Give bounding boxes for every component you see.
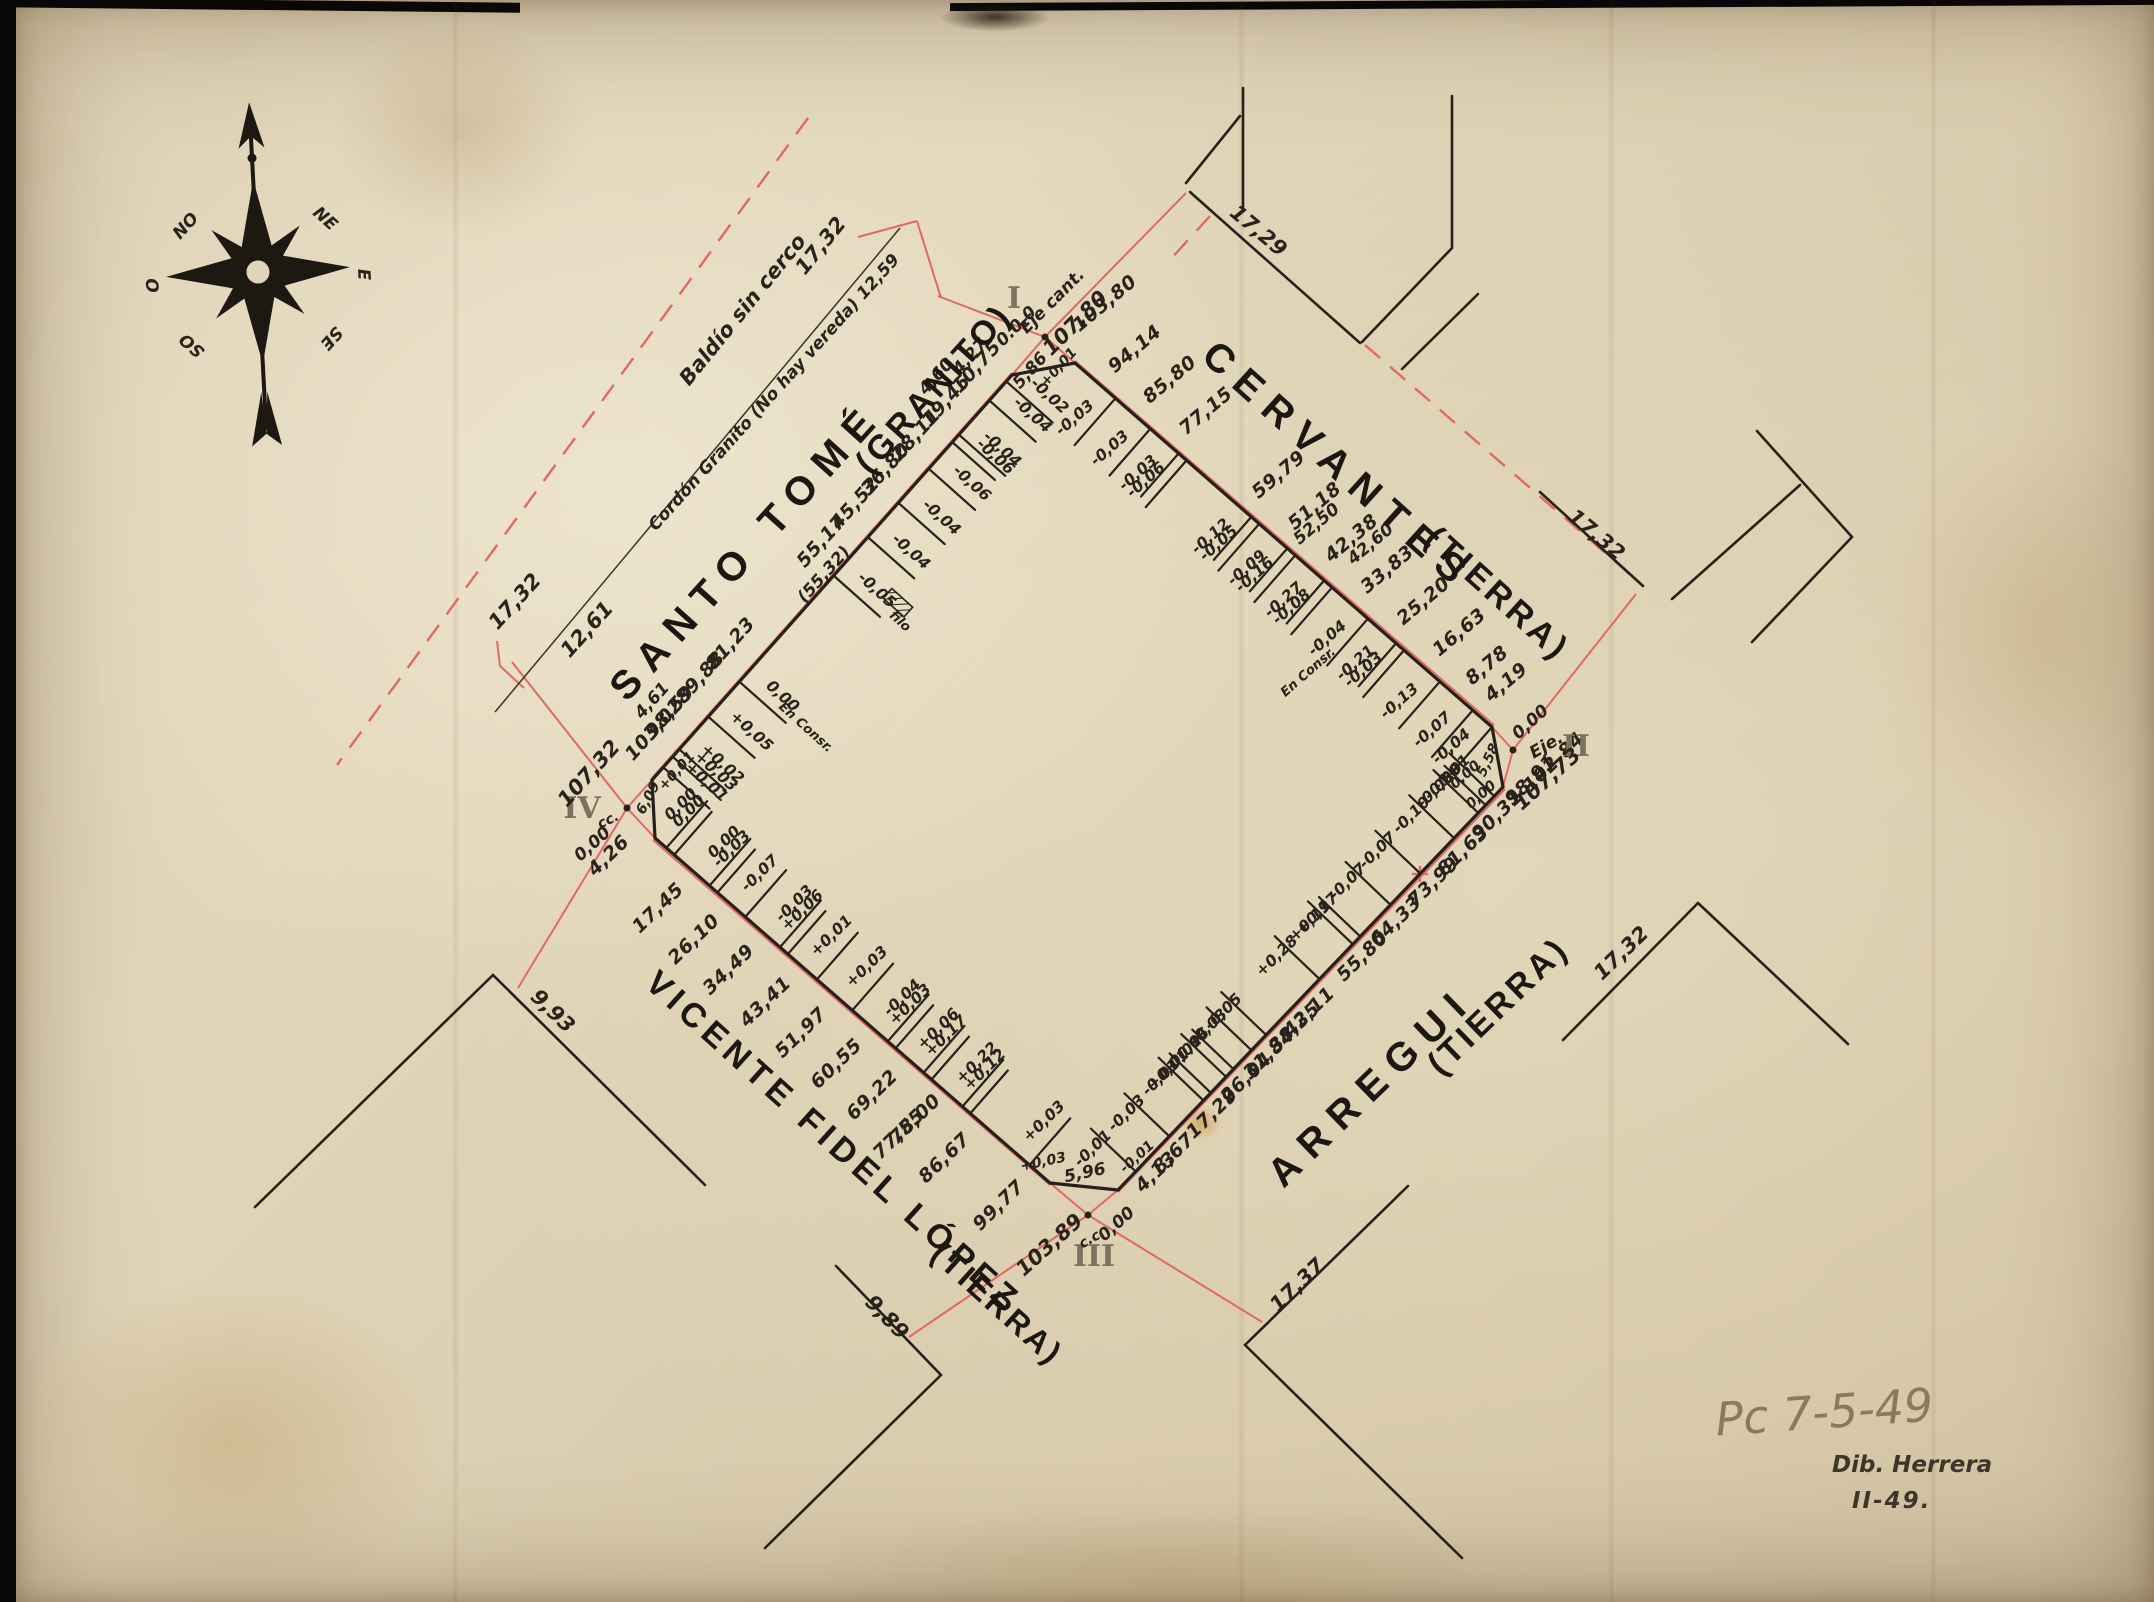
- station-distance-label: 69,22: [842, 1065, 902, 1124]
- neighbor-block-line: [1402, 294, 1478, 369]
- neighbor-block-line: [1752, 537, 1852, 642]
- compass-point-label-ne: NE: [309, 203, 342, 235]
- neighbor-block-line: [255, 975, 493, 1207]
- compass-group: NONEOESOSE: [134, 96, 382, 452]
- compass-point-label-o: O: [143, 278, 164, 293]
- survey-plan-canvas: -0,02-0,04-0,04-0,06-0,06-0,04-0,04-0,05…: [0, 0, 2154, 1602]
- map-annotation-label: 5,96: [1062, 1159, 1107, 1187]
- map-annotation-label: +0,03: [1019, 1149, 1068, 1174]
- correction-label: -0,06: [949, 462, 994, 505]
- map-annotation-label: 9,93: [526, 984, 580, 1037]
- station-distance-label: 78,00: [885, 1090, 945, 1149]
- compass-point-label-se: SE: [315, 322, 346, 353]
- compass-hub: [244, 258, 271, 285]
- neighbor-block-line: [1245, 1345, 1462, 1558]
- compass-point-label-no: NO: [169, 209, 203, 244]
- station-distance-label: 85,80: [1139, 351, 1201, 408]
- correction-label: +0,03: [1019, 1097, 1068, 1146]
- map-annotation-label: 9,89: [860, 1290, 913, 1344]
- scanned-survey-sheet: -0,02-0,04-0,04-0,06-0,06-0,04-0,04-0,05…: [0, 0, 2154, 1602]
- map-annotation-label: 17,32: [1563, 504, 1629, 565]
- station-distance-label: 16,63: [1428, 604, 1490, 661]
- correction-label: -0,03: [1104, 1091, 1149, 1135]
- station-distance-label: 17,45: [628, 878, 688, 937]
- station-distance-label: 86,67: [914, 1128, 975, 1188]
- station-distance-label: 43,41: [735, 972, 796, 1032]
- neighbor-block-line: [1362, 248, 1452, 342]
- station-distance-label: 99,77: [968, 1176, 1029, 1236]
- neighbor-block-line: [1245, 1186, 1408, 1345]
- map-annotation-label: 17,37: [1265, 1253, 1330, 1317]
- compass-fletching: [264, 391, 282, 446]
- official-line-red: [1503, 750, 1513, 787]
- neighbor-block-line: [1672, 485, 1800, 599]
- neighbor-block-line: [1186, 116, 1240, 183]
- tick-note-label: En Consr.: [775, 700, 835, 756]
- correction-label: +0,03: [842, 942, 891, 991]
- station-distance-label: 26,10: [664, 910, 724, 969]
- compass-point-label-e: E: [353, 268, 374, 281]
- neighbor-block-line: [1563, 903, 1698, 1040]
- compass-point-label-so: SO: [176, 329, 209, 362]
- correction-label: -0,07: [737, 851, 782, 895]
- station-distance-label: 34,49: [698, 940, 758, 999]
- correction-label: +0,01: [807, 911, 856, 960]
- compass-rose: NONEOESOSE: [134, 96, 382, 452]
- station-distance-label: 51,97: [771, 1003, 832, 1063]
- neighbor-block-line: [765, 1375, 941, 1548]
- correction-label: -0,10: [1389, 793, 1434, 837]
- axis-intersection-dot: [624, 805, 631, 812]
- draftsman-date-note: II-49.: [1852, 1488, 1931, 1514]
- station-distance-label: 94,14: [1104, 320, 1166, 377]
- axis-intersection-dot: [1510, 747, 1517, 754]
- tick-note-label: filo: [886, 608, 914, 635]
- correction-label: -0,03: [1087, 427, 1133, 470]
- official-line-red: [497, 641, 500, 666]
- correction-label: -0,04: [889, 530, 934, 573]
- official-line-red-dashed: [1168, 216, 1210, 262]
- neighbor-block-line: [1757, 431, 1852, 537]
- official-line-red: [917, 221, 941, 298]
- official-line-red: [500, 666, 524, 688]
- neighbor-block-line: [1698, 903, 1848, 1044]
- compass-shaft-bead: [247, 153, 256, 162]
- draftsman-note: Dib. Herrera: [1832, 1452, 1992, 1478]
- official-line-red: [858, 221, 917, 237]
- official-line-red: [1088, 1190, 1118, 1215]
- station-distance-label: 60,55: [806, 1034, 866, 1093]
- ochava-chamfer-line: [1050, 1183, 1118, 1190]
- correction-label: -0,04: [919, 496, 964, 539]
- tick-note-label: En Consr.: [1278, 645, 1339, 701]
- axis-intersection-dot: [1085, 1212, 1092, 1219]
- correction-label: +0,05: [727, 707, 777, 755]
- map-annotation-label: 17,32: [484, 569, 546, 634]
- correction-label: -0,13: [1376, 679, 1422, 722]
- neighbor-block-line: [1190, 192, 1360, 343]
- map-annotation-label: 17,32: [1589, 921, 1653, 984]
